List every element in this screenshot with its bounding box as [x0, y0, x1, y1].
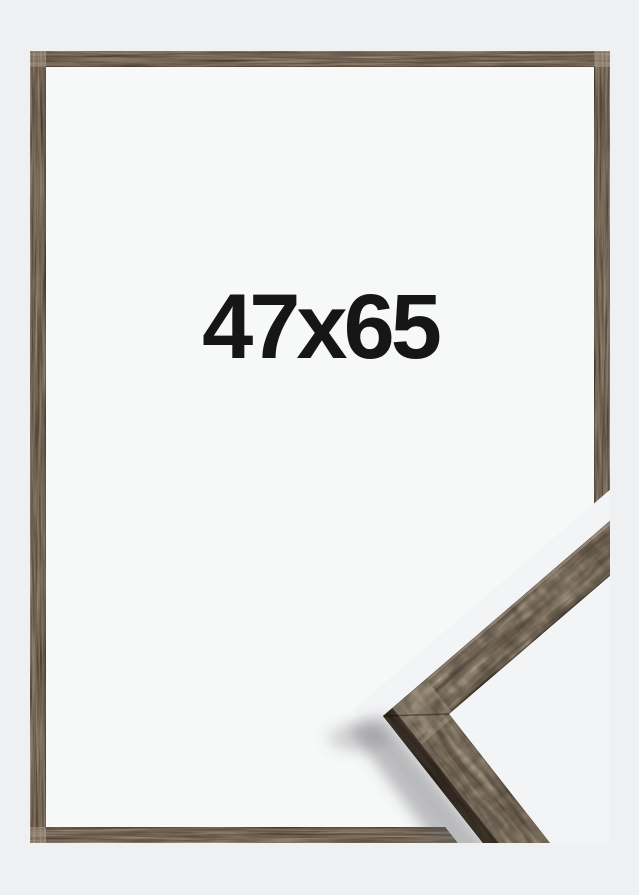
frame-size-label: 47x65	[46, 279, 594, 375]
frame-rail-top	[30, 51, 610, 67]
corner-detail-shadow-tip	[328, 725, 388, 751]
frame-rail-left	[30, 51, 46, 843]
frame-product-image: 47x65	[0, 0, 639, 895]
frame-illustration	[0, 0, 639, 895]
